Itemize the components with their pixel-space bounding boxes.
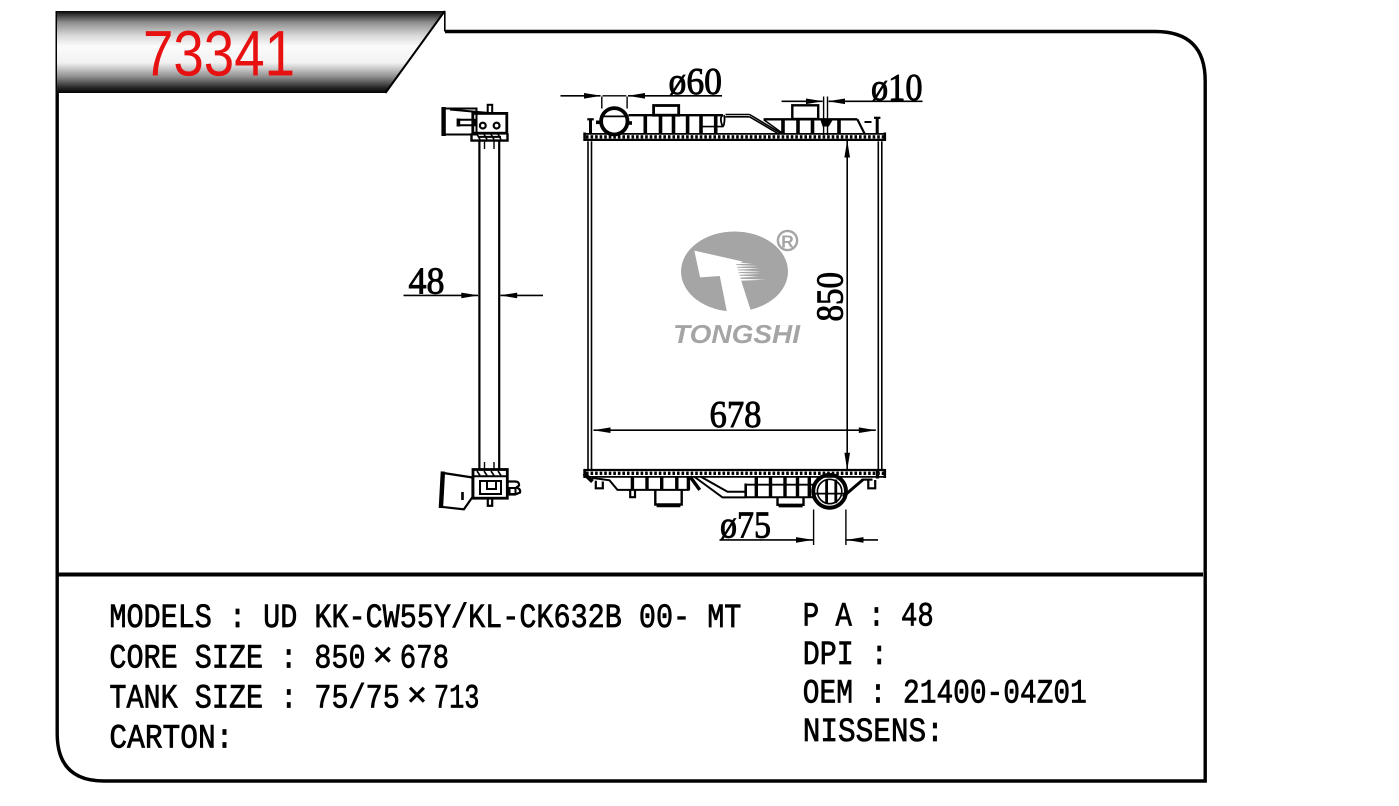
svg-text:73341: 73341: [143, 18, 295, 90]
svg-text:713: 713: [434, 681, 480, 719]
svg-text:CORE SIZE : 850: CORE SIZE : 850: [109, 640, 365, 678]
svg-text:TANK SIZE : 75/75: TANK SIZE : 75/75: [109, 681, 399, 719]
svg-text:ø10: ø10: [871, 67, 923, 109]
svg-text:CARTON:: CARTON:: [109, 721, 233, 759]
svg-text:×: ×: [372, 639, 392, 677]
svg-text:ø60: ø60: [669, 61, 723, 103]
svg-text:ø75: ø75: [720, 505, 771, 547]
svg-text:R: R: [781, 232, 794, 252]
svg-text:TONGSHI: TONGSHI: [673, 319, 801, 349]
svg-text:DPI :: DPI :: [803, 637, 888, 675]
svg-text:×: ×: [407, 679, 427, 717]
svg-text:850: 850: [810, 272, 852, 322]
svg-text:P A : 48: P A : 48: [803, 599, 934, 637]
svg-text:678: 678: [400, 640, 449, 678]
svg-text:678: 678: [710, 394, 762, 436]
svg-text:MODELS : UD KK-CW55Y/KL-CK632B: MODELS : UD KK-CW55Y/KL-CK632B 00- MT: [109, 600, 741, 638]
svg-text:48: 48: [409, 261, 445, 303]
svg-text:NISSENS:: NISSENS:: [803, 714, 944, 752]
svg-text:OEM : 21400-04Z01: OEM : 21400-04Z01: [803, 676, 1087, 714]
